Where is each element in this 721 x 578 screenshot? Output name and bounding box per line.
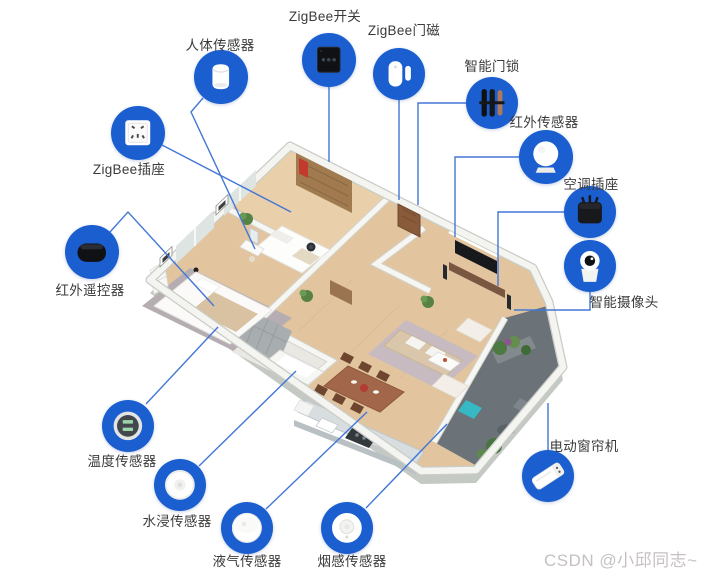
ac-socket-node bbox=[564, 186, 616, 238]
smart-door-lock-connector-line bbox=[418, 103, 466, 205]
gas-sensor-connector-line bbox=[266, 412, 367, 509]
wall-socket-icon bbox=[114, 109, 162, 157]
smoke-sensor-connector-line bbox=[366, 424, 447, 508]
ac-socket-label: 空调插座 bbox=[563, 173, 618, 193]
water-leak-sensor-connector-line bbox=[199, 371, 296, 466]
gas-sensor-node bbox=[221, 502, 273, 554]
ir-remote-label: 红外遥控器 bbox=[56, 279, 125, 299]
csdn-watermark: CSDN @小邱同志~ bbox=[544, 546, 698, 571]
curtain-motor-label: 电动窗帘机 bbox=[550, 435, 619, 455]
gas-sensor-label: 液气传感器 bbox=[213, 550, 282, 570]
door-magnet-icon bbox=[376, 51, 422, 97]
gas-sensor-icon bbox=[224, 505, 270, 551]
human-body-sensor-node bbox=[194, 50, 248, 104]
curtain-motor-icon bbox=[525, 453, 571, 499]
smoke-detector-icon bbox=[324, 505, 370, 551]
wall-switch-icon bbox=[305, 36, 353, 84]
remote-icon bbox=[68, 228, 116, 276]
water-leak-sensor-node bbox=[154, 459, 206, 511]
smart-camera-node bbox=[564, 240, 616, 292]
smart-door-lock-label: 智能门锁 bbox=[464, 55, 519, 75]
zigbee-door-magnet-label: ZigBee门磁 bbox=[368, 19, 440, 39]
zigbee-switch-node bbox=[302, 33, 356, 87]
zigbee-socket-connector-line bbox=[162, 145, 291, 212]
smart-camera-label: 智能摄像头 bbox=[590, 291, 659, 311]
door-lock-icon bbox=[469, 80, 515, 126]
water-leak-sensor-label: 水浸传感器 bbox=[143, 510, 212, 530]
temperature-sensor-label: 温度传感器 bbox=[88, 450, 157, 470]
camera-icon bbox=[567, 243, 613, 289]
water-sensor-icon bbox=[157, 462, 203, 508]
zigbee-socket-node bbox=[111, 106, 165, 160]
thermometer-icon bbox=[105, 403, 151, 449]
temperature-sensor-connector-line bbox=[146, 327, 218, 404]
smoke-sensor-node bbox=[321, 502, 373, 554]
ir-remote-node bbox=[65, 225, 119, 279]
infrared-sensor-label: 红外传感器 bbox=[510, 111, 579, 131]
ac-socket-connector-line bbox=[498, 212, 564, 286]
zigbee-socket-label: ZigBee插座 bbox=[93, 158, 165, 178]
smart-home-diagram: 人体传感器ZigBee开关ZigBee门磁智能门锁红外传感器空调插座智能摄像头Z… bbox=[0, 0, 721, 578]
temperature-sensor-node bbox=[102, 400, 154, 452]
body-sensor-icon bbox=[197, 53, 245, 101]
infrared-sensor-connector-line bbox=[455, 157, 519, 237]
power-plug-icon bbox=[567, 189, 613, 235]
human-body-sensor-label: 人体传感器 bbox=[186, 34, 255, 54]
smoke-sensor-label: 烟感传感器 bbox=[318, 550, 387, 570]
curtain-motor-node bbox=[522, 450, 574, 502]
smart-camera-connector-line bbox=[514, 292, 590, 310]
human-body-sensor-connector-line bbox=[191, 98, 255, 249]
ir-remote-connector-line bbox=[110, 212, 214, 306]
zigbee-door-magnet-node bbox=[373, 48, 425, 100]
zigbee-switch-label: ZigBee开关 bbox=[289, 5, 361, 25]
